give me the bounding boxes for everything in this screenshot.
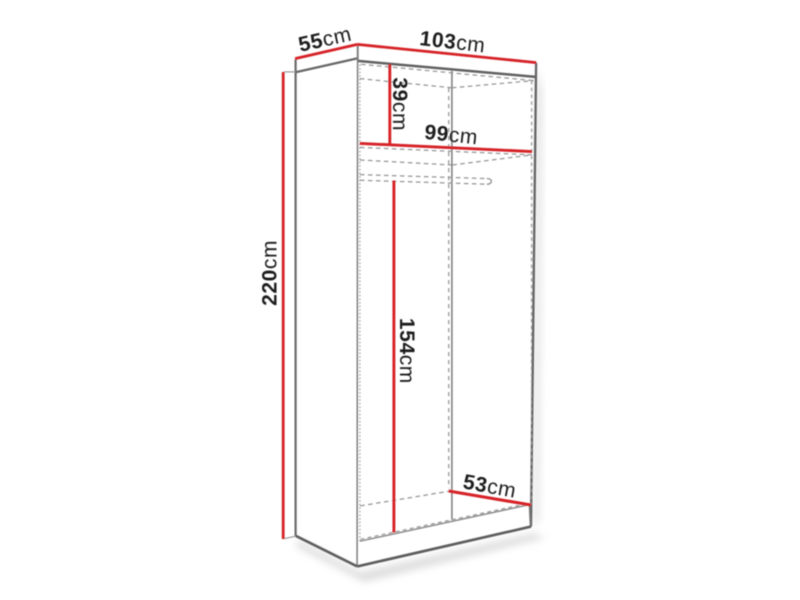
svg-text:220cm: 220cm <box>258 240 281 306</box>
svg-text:154cm: 154cm <box>395 318 418 384</box>
svg-text:39cm: 39cm <box>388 77 411 131</box>
